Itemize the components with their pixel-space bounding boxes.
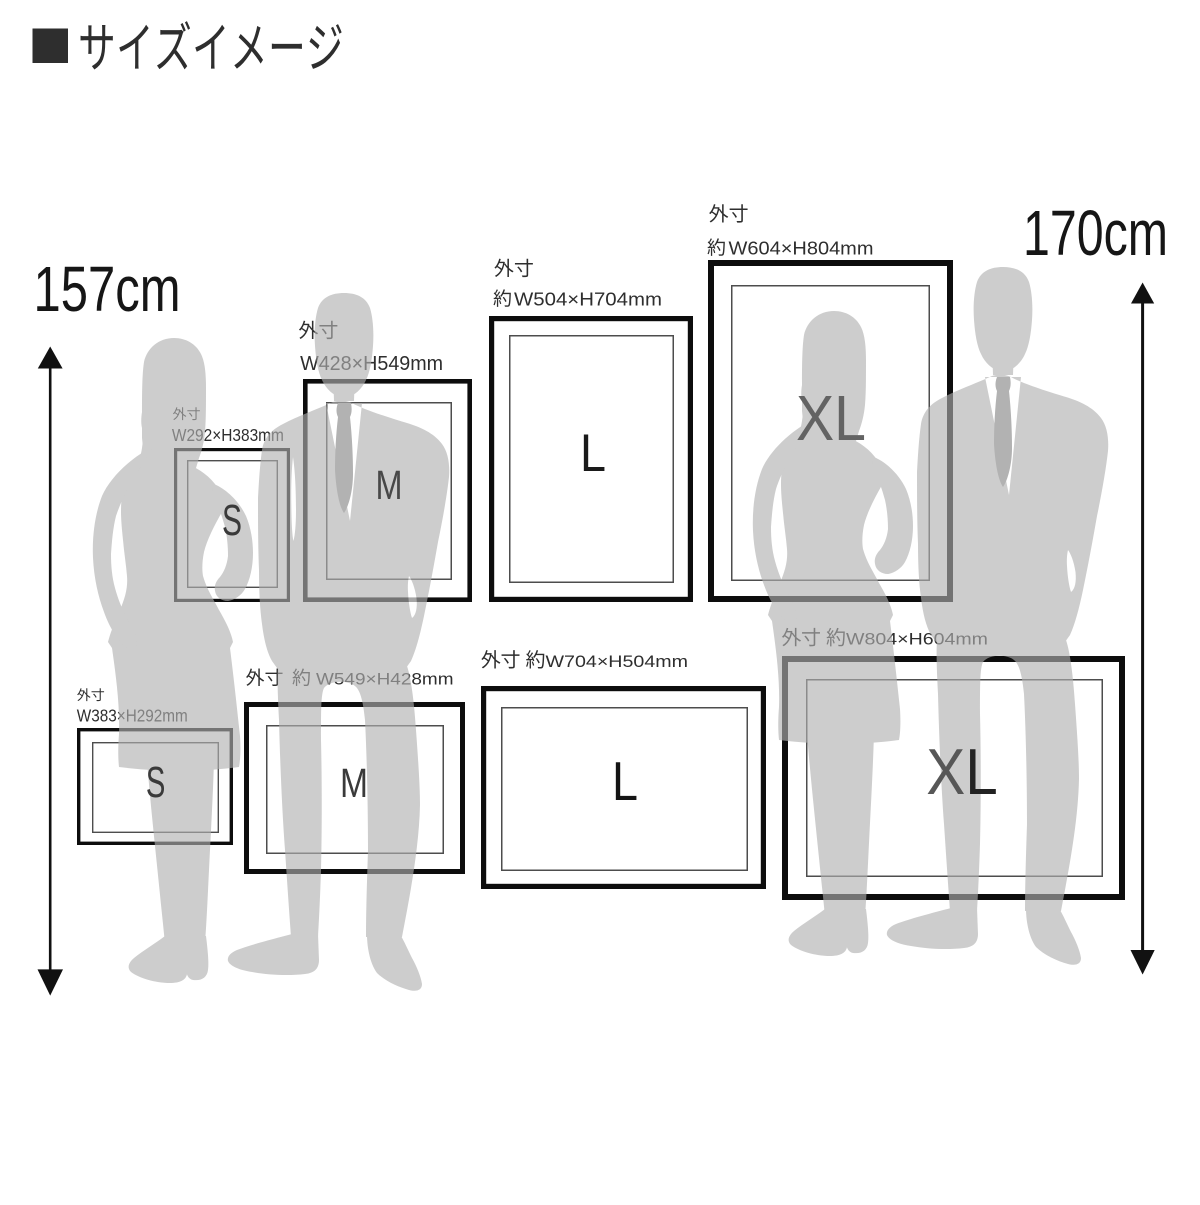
svg-text:M: M	[376, 462, 403, 508]
svg-text:W604×H804mm: W604×H804mm	[729, 238, 874, 258]
svg-text:W704×H504mm: W704×H504mm	[546, 652, 689, 671]
svg-text:W504×H704mm: W504×H704mm	[514, 289, 662, 309]
svg-text:170cm: 170cm	[1023, 197, 1168, 269]
svg-text:S: S	[222, 496, 242, 545]
svg-text:M: M	[340, 760, 368, 806]
svg-text:XL: XL	[796, 382, 866, 454]
svg-text:XL: XL	[926, 735, 998, 808]
svg-text:L: L	[580, 424, 606, 483]
svg-text:157cm: 157cm	[34, 253, 181, 325]
svg-text:L: L	[612, 750, 638, 812]
svg-text:S: S	[146, 758, 166, 807]
